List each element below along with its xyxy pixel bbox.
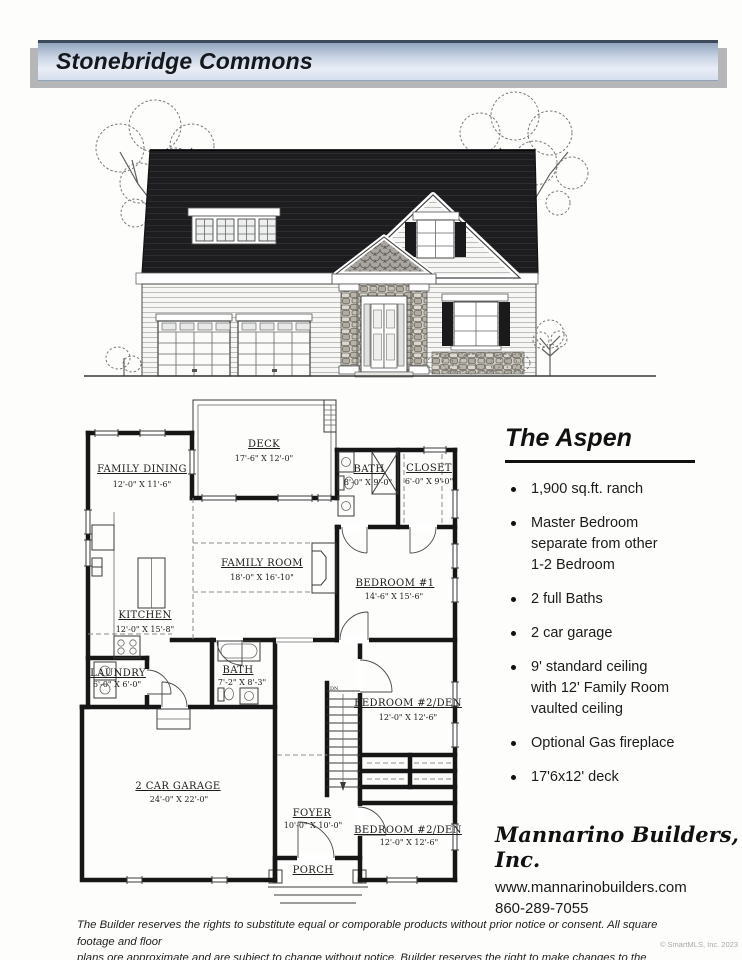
garage-door-left [158,321,230,376]
bullet-dot-icon [511,631,516,636]
bullet-dot-icon [511,487,516,492]
room-dims-laundry: 6'-0" X 6'-0" [93,680,141,689]
feature-item: Master Bedroom separate from other 1-2 B… [511,513,723,576]
feature-item: 2 full Baths [511,589,723,610]
room-name-bedroom2-upper: BEDROOM #2/DEN [354,698,462,709]
bullet-dot-icon [511,665,516,670]
room-name-family-room: FAMILY ROOM [221,558,303,569]
room-name-closet: CLOSET [406,463,452,474]
feature-item: Optional Gas fireplace [511,733,723,754]
right-small-tree-sketch [533,320,567,376]
copyright-text: © SmartMLS, Inc. 2023 [600,940,738,949]
garage-door-right [238,321,310,376]
bullet-dot-icon [511,741,516,746]
room-dims-family-dining: 12'-0" X 11'-6" [113,480,171,489]
floor-plan-drawing: DN FAMILY DINING 12'-0" X 11'-6" DECK 17… [72,392,484,912]
house-elevation-drawing [80,88,660,390]
front-door [361,296,407,372]
banner: Stonebridge Commons [38,40,718,81]
window-shutter-left [442,302,453,346]
room-dims-bedroom1: 14'-6" X 15'-6" [365,592,423,601]
gable-shutter-right [455,222,466,257]
flyer-page: Stonebridge Commons [0,0,742,960]
feature-item: 1,900 sq.ft. ranch [511,479,723,500]
room-dims-family-room: 18'-0" X 16'-10" [230,573,294,582]
room-name-bath-top: BATH [353,464,384,475]
builder-website: www.mannarinobuilders.com [495,877,740,898]
room-name-porch: PORCH [293,865,334,876]
feature-list: 1,900 sq.ft. ranch Master Bedroom separa… [505,479,723,788]
disclaimer-text: The Builder reserves the rights to subst… [77,917,673,960]
room-name-foyer: FOYER [293,808,332,819]
stone-column-right [411,291,427,366]
room-name-family-dining: FAMILY DINING [97,464,187,475]
room-dims-garage: 24'-0" X 22'-0" [150,795,208,804]
feature-item: 9' standard ceiling with 12' Family Room… [511,657,723,720]
left-bush-sketch [106,347,141,376]
room-dims-closet: 6'-0" X 9'-0" [405,477,453,486]
walls [82,433,455,880]
feature-item: 2 car garage [511,623,723,644]
room-dims-kitchen: 12'-0" X 15'-8" [116,625,174,634]
bullet-dot-icon [511,597,516,602]
disclaimer-line-2: plans ore approximate and are subject to… [77,950,673,960]
room-name-laundry: LAUNDRY [90,668,146,679]
bullet-dot-icon [511,775,516,780]
room-name-kitchen: KITCHEN [118,610,171,621]
disclaimer-line-1: The Builder reserves the rights to subst… [77,917,673,950]
builder-info: Mannarino Builders, Inc. www.mannarinobu… [495,822,740,920]
roof-dormer [188,208,280,244]
room-name-deck: DECK [248,439,280,450]
window-shutter-right [499,302,510,346]
room-dims-bath-mid: 7'-2" X 8'-3" [218,678,266,687]
room-name-bath-mid: BATH [222,665,253,676]
feature-item: 17'6x12' deck [511,767,723,788]
room-dims-bedroom2-upper: 12'-0" X 12'-6" [379,713,437,722]
model-name: The Aspen [505,424,695,463]
builder-name: Mannarino Builders, Inc. [495,822,740,872]
room-name-garage: 2 CAR GARAGE [135,781,220,792]
room-dims-deck: 17'-6" X 12'-0" [235,454,293,463]
room-name-bedroom1: BEDROOM #1 [356,578,435,589]
bullet-dot-icon [511,521,516,526]
room-name-bedroom2-lower: BEDROOM #2/DEN [354,825,462,836]
model-panel: The Aspen 1,900 sq.ft. ranch Master Bedr… [505,424,723,801]
room-dims-foyer: 10'-0" X 10'-0" [284,821,342,830]
stairs-dn-label: DN [330,686,339,692]
room-dims-bath-top: 8'-0" X 9'-0" [344,478,392,487]
page-title: Stonebridge Commons [38,43,718,75]
stone-column-left [341,291,357,366]
room-dims-bedroom2-lower: 12'-0" X 12'-6" [380,838,438,847]
